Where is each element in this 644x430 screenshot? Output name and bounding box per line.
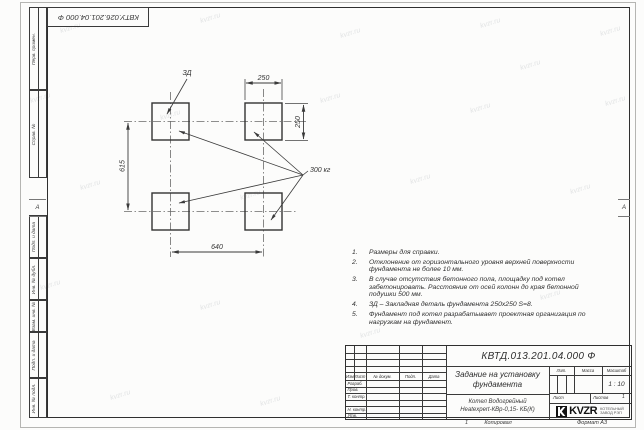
tb-logo-cell: KVZR КОТЕЛЬНЫЙ ЗАВОД РЭП (549, 403, 631, 419)
embed-plate-label: ЗД (183, 70, 192, 77)
note-item: 4. ЗД – Закладная деталь фундамента 250х… (352, 301, 628, 309)
note-item: 5. Фундамент под котел разрабатывает про… (352, 311, 628, 326)
note-item: 1. Размеры для справки. (352, 249, 628, 257)
format-label: Формат А3 (572, 420, 612, 426)
tb-product-line1: Котел Водогрейный (468, 399, 526, 407)
tb-grid-line (346, 400, 446, 401)
dimension-lines (128, 83, 304, 252)
tb-mass-label: Масса (574, 366, 602, 375)
tb-grid-line (566, 375, 567, 393)
note-number: 2. (352, 259, 367, 274)
kvzr-logo-icon (556, 406, 567, 417)
tb-grid-line (346, 366, 446, 367)
tb-sheet-label: Лист (553, 395, 564, 400)
tb-grid-line (346, 353, 446, 354)
note-text: Фундамент под котел разрабатывает проект… (369, 311, 628, 326)
kvzr-logo-text: KVZR (569, 405, 597, 417)
tb-product: Котел Водогрейный Heatexpert-КВр-0,15- К… (446, 394, 549, 419)
tb-col-list: Лист (354, 372, 366, 380)
kvzr-logo-caption-line2: ЗАВОД РЭП (600, 411, 624, 415)
dim-label-left: 615 (120, 160, 127, 172)
tb-grid-line (346, 359, 446, 360)
tb-row-utv: Утв. (348, 413, 358, 418)
note-text: В случае отсутствия бетонного пола, площ… (369, 276, 628, 299)
tb-col-data: Дата (422, 372, 446, 380)
tb-col-docnum: № докум. (366, 372, 399, 380)
foundation-pads (152, 103, 282, 230)
tb-grid-line (422, 346, 423, 419)
bottom-strip-number: 1 (465, 420, 468, 426)
dim-label-top: 250 (257, 75, 270, 82)
tb-scale-label: Масштаб (602, 366, 631, 375)
note-item: 2. Отклонение от горизонтального уровня … (352, 259, 628, 274)
extension-lines (245, 79, 308, 141)
note-number: 1. (352, 249, 367, 257)
leader-lines (167, 79, 308, 220)
dim-label-right: 250 (295, 116, 302, 129)
tb-col-podp: Подп. (399, 372, 422, 380)
tb-grid-line (346, 387, 446, 388)
note-number: 4. (352, 301, 367, 309)
note-text: Размеры для справки. (369, 249, 628, 257)
tb-grid-line (590, 393, 591, 403)
load-label: 300 кг (310, 167, 331, 174)
tb-lit-label: Лит. (549, 366, 574, 375)
tb-scale-value: 1 : 10 (602, 375, 631, 393)
tb-row-tkontr: Т. контр. (348, 394, 366, 399)
note-text: ЗД – Закладная деталь фундамента 250х250… (369, 301, 628, 309)
tb-row-razrab: Разраб. (348, 381, 363, 386)
notes-list: 1. Размеры для справки. 2. Отклонение от… (352, 249, 628, 328)
tb-sheets-value: 1 (622, 394, 625, 400)
tb-product-line2: Heatexpert-КВр-0,15- КБ(К) (460, 407, 535, 415)
copied-label: Копировал (478, 420, 518, 426)
note-item: 3. В случае отсутствия бетонного пола, п… (352, 276, 628, 299)
note-number: 3. (352, 276, 367, 299)
tb-row-prov: Пров. (348, 387, 359, 392)
drawing-sheet: kvzr.ru kvzr.ru kvzr.ru kvzr.ru kvzr.ru … (0, 0, 644, 430)
tb-row-nkontr: Н. контр. (348, 407, 367, 412)
title-block: Изм Лист № докум. Подп. Дата Разраб. Про… (345, 345, 632, 420)
tb-grid-line (346, 413, 446, 414)
tb-doc-title: Задание на установку фундамента (446, 366, 549, 394)
tb-grid-line (557, 375, 558, 393)
tb-grid-line (399, 346, 400, 419)
note-text: Отклонение от горизонтального уровня вер… (369, 259, 628, 274)
tb-designation: КВТД.013.201.04.000 Ф (446, 346, 631, 366)
dim-label-bottom: 640 (211, 244, 223, 251)
tb-col-izm: Изм (346, 372, 354, 380)
tb-sheets-label: Листов (593, 395, 608, 400)
note-number: 5. (352, 311, 367, 326)
kvzr-logo-caption: КОТЕЛЬНЫЙ ЗАВОД РЭП (600, 407, 624, 415)
